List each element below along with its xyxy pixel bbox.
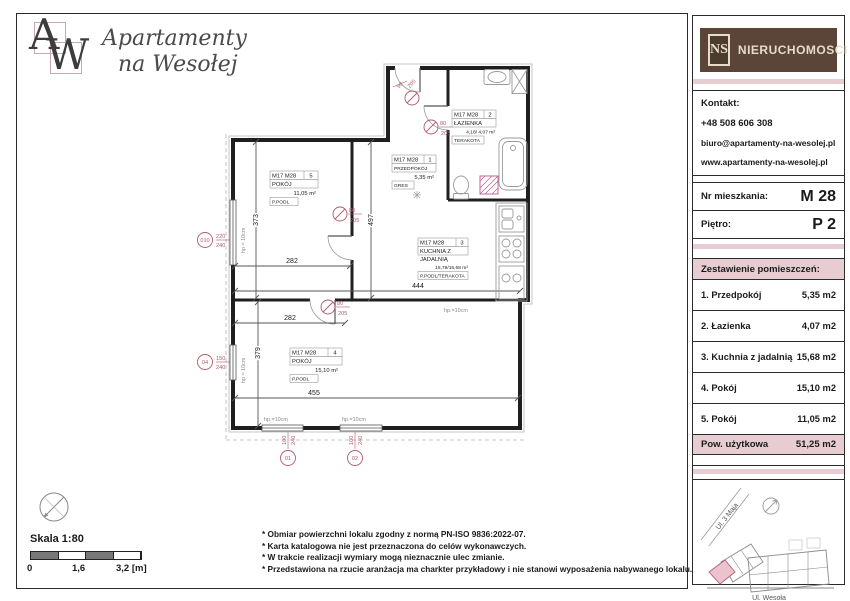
kitchen-finish: P.PODL/TERAKOTA — [420, 274, 465, 280]
room-name: 1. Przedpokój — [701, 290, 761, 300]
dim-379: 379 — [255, 347, 262, 359]
unit-floor-label: Piętro: — [701, 219, 731, 230]
contact-heading: Kontakt: — [701, 98, 836, 109]
monogram-letter-w: W — [46, 34, 89, 76]
bathroom-number: 2 — [488, 113, 491, 119]
agency-logo-abbr: NS — [708, 34, 730, 66]
scale-bar — [30, 551, 142, 560]
room4-finish: P.PODL — [292, 377, 310, 383]
room5-door-width: 80 — [349, 208, 355, 214]
note-line-1: * Obmiar powierzchni lokalu zgodny z nor… — [262, 529, 686, 541]
window-01-height: 240 — [291, 436, 297, 445]
rooms-table: Zestawienie pomieszczeń: 1. Przedpokój 5… — [693, 258, 844, 466]
agency-logo-name: NIERUCHOMOSCI — [738, 43, 848, 57]
kitchen-name-line2: JADALNIĄ — [420, 257, 448, 263]
room4-area: 15,10 m² — [315, 368, 338, 374]
contact-website: www.apartamenty-na-wesolej.pl — [701, 157, 836, 167]
bathroom-code: M17 M28 — [454, 113, 478, 119]
hp-note-left-lower: hp = 10cm — [241, 357, 247, 383]
pink-divider-1 — [693, 79, 844, 84]
kitchen-number: 3 — [460, 241, 463, 247]
site-map: Ul. 3 Maja Ul. Weso — [693, 480, 844, 601]
total-area-row: Pow. użytkowa 51,25 m2 — [693, 435, 844, 455]
floor-plan: 90 205 80 205 80 205 80 205 — [190, 48, 550, 488]
footnotes: * Obmiar powierzchni lokalu zgodny z nor… — [262, 529, 686, 575]
room-row-5: 5. Pokój 11,05 m2 — [693, 404, 844, 435]
window-010 — [230, 200, 237, 265]
room5-code: M17 M28 — [272, 174, 296, 180]
unit-floor-value: P 2 — [812, 216, 836, 234]
bathroom-door-width: 80 — [440, 121, 446, 127]
rooms-table-heading: Zestawienie pomieszczeń: — [693, 259, 844, 280]
light-point-symbol — [413, 191, 421, 199]
hp-note-bottom-1: hp.=10cm — [264, 417, 288, 423]
room-row-2: 2. Łazienka 4,07 m2 — [693, 311, 844, 342]
window-04 — [230, 345, 237, 380]
pink-divider-3 — [693, 469, 844, 474]
room4-door-width: 80 — [337, 301, 343, 307]
bathroom-finish: TERAKOTA — [454, 138, 481, 144]
agency-logo: NS NIERUCHOMOSCI — [700, 28, 837, 72]
hallway-name: PRZEDPOKÓJ — [394, 165, 428, 172]
bathroom-name: ŁAZIENKA — [454, 121, 482, 127]
sidebar: NS NIERUCHOMOSCI Kontakt: +48 508 606 30… — [692, 15, 845, 585]
window-marker-04: 04 150 240 — [198, 355, 231, 372]
hp-note-bottom-2: hp.=10cm — [342, 417, 366, 423]
room5-area: 11,05 m² — [294, 191, 317, 197]
hallway-area: 5,35 m² — [414, 175, 434, 181]
window-04-height: 240 — [216, 365, 225, 371]
kitchen-name-line1: KUCHNIA Z — [420, 249, 451, 255]
pink-divider-2 — [693, 244, 844, 249]
utility-shaft-pion — [480, 176, 498, 194]
building-footprint — [721, 538, 829, 592]
scale-tick-0: 0 — [27, 563, 32, 574]
contact-phone: +48 508 606 308 — [701, 118, 836, 129]
unit-location-highlight — [709, 560, 735, 584]
unit-number-row: Nr mieszkania: M 28 — [693, 183, 844, 211]
scale-label: Skala 1:80 — [30, 533, 84, 545]
scale-segment-dark — [86, 552, 113, 559]
window-02 — [340, 425, 382, 432]
window-02-height: 240 — [358, 436, 364, 445]
map-compass-icon — [763, 498, 779, 514]
dim-373: 373 — [253, 214, 260, 226]
room-area: 15,10 m2 — [797, 383, 836, 393]
brand-monogram: A W — [26, 18, 88, 78]
room5-name: POKÓJ — [272, 181, 292, 188]
compass-icon — [34, 487, 74, 527]
unit-info-box: Nr mieszkania: M 28 Piętro: P 2 — [693, 182, 844, 239]
hp-note-left-upper: hp = 10cm — [241, 227, 247, 253]
room-area: 4,07 m2 — [802, 321, 836, 331]
hallway-finish: GRES — [394, 183, 409, 189]
unit-floor-row: Piętro: P 2 — [693, 211, 844, 238]
room5-finish: P.PODL — [272, 200, 290, 206]
room-row-3: 3. Kuchnia z jadalnią 15,68 m2 — [693, 342, 844, 373]
dim-282-lower: 282 — [284, 315, 296, 322]
window-02-width: 100 — [349, 436, 355, 445]
room4-name: POKÓJ — [292, 358, 312, 365]
kitchen-code: M17 M28 — [420, 241, 444, 247]
scale-segment-dark — [31, 552, 58, 559]
note-line-4: * Przedstawiona na rzucie aranżacja ma c… — [262, 564, 686, 576]
scale-segment-light — [58, 552, 87, 559]
room-name: 5. Pokój — [701, 414, 737, 424]
room-area: 5,35 m2 — [802, 290, 836, 300]
dim-282-upper: 282 — [286, 258, 298, 265]
contact-block: Kontakt: +48 508 606 308 biuro@apartamen… — [693, 90, 844, 176]
catalog-card-page: A W Apartamenty na Wesołej — [0, 0, 850, 601]
bathroom-door-height: 205 — [441, 131, 450, 137]
contact-email: biuro@apartamenty-na-wesolej.pl — [701, 138, 836, 148]
hallway-number: 1 — [428, 158, 431, 164]
window-010-width: 220 — [216, 234, 225, 240]
hallway-code: M17 M28 — [394, 158, 418, 164]
site-map-box: Ul. 3 Maja Ul. Weso — [693, 479, 844, 601]
note-line-3: * W trakcie realizacji wymiary mogą niez… — [262, 552, 686, 564]
dim-497: 497 — [368, 214, 375, 226]
bathroom-area: 4,18/ 4,07 m² — [466, 130, 495, 136]
room4-door-height: 205 — [338, 311, 347, 317]
room-row-1: 1. Przedpokój 5,35 m2 — [693, 280, 844, 311]
unit-number-label: Nr mieszkania: — [701, 191, 768, 202]
room-row-4: 4. Pokój 15,10 m2 — [693, 373, 844, 404]
room-name: 3. Kuchnia z jadalnią — [701, 352, 792, 362]
room-name: 4. Pokój — [701, 383, 737, 393]
room5-door-height: 205 — [350, 218, 359, 224]
window-010-height: 240 — [216, 243, 225, 249]
room-area: 11,05 m2 — [797, 414, 836, 424]
kitchen-area: 15,79/15,68 m² — [435, 265, 468, 271]
window-marker-01: 01 100 240 — [281, 432, 298, 466]
window-02-id: 02 — [352, 456, 358, 462]
scale-tick-2: 3,2 [m] — [116, 563, 147, 574]
window-04-width: 150 — [216, 356, 225, 362]
empty-row — [693, 455, 844, 465]
window-01-id: 01 — [285, 456, 291, 462]
total-area-label: Pow. użytkowa — [701, 439, 768, 450]
window-marker-02: 02 100 240 — [348, 432, 365, 466]
note-line-2: * Karta katalogowa nie jest przeznaczona… — [262, 541, 686, 553]
street-bottom-label: Ul. Wesoła — [752, 595, 786, 601]
dim-444: 444 — [412, 283, 424, 290]
window-marker-010: 010 220 240 — [198, 233, 231, 250]
window-01-width: 100 — [282, 436, 288, 445]
dim-455: 455 — [308, 390, 320, 397]
room-area: 15,68 m2 — [797, 352, 836, 362]
hp-note-kitchen: hp.=10cm — [444, 308, 468, 314]
room5-number: 5 — [309, 174, 312, 180]
room4-code: M17 M28 — [292, 351, 316, 357]
window-010-id: 010 — [200, 238, 209, 244]
room-name: 2. Łazienka — [701, 321, 751, 331]
window-01 — [262, 425, 303, 432]
unit-number-value: M 28 — [800, 188, 836, 206]
scale-segment-light — [113, 552, 142, 559]
window-04-id: 04 — [202, 360, 208, 366]
scale-tick-1: 1,6 — [72, 563, 85, 574]
total-area-value: 51,25 m2 — [796, 439, 836, 450]
